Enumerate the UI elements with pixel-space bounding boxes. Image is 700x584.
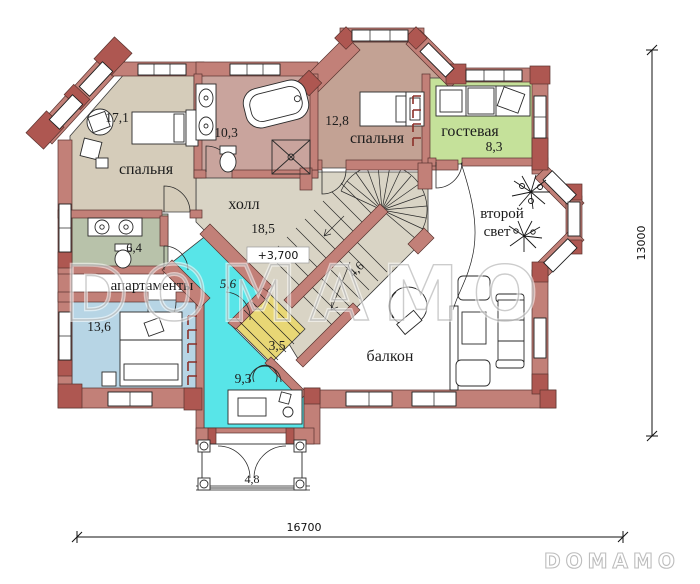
window-icon (466, 70, 522, 81)
desk-icon (228, 390, 302, 424)
bed-icon (132, 110, 198, 146)
sink-icon (196, 84, 216, 140)
label-bedroom1-name: спальня (119, 161, 174, 178)
floor-plan-drawing: спальня 17,1 10,3 спальня 12,8 гостевая … (0, 0, 700, 584)
window-icon (568, 202, 580, 236)
armchair-icon (456, 360, 490, 386)
label-office-area: 9,3 (235, 371, 252, 386)
sofa-icon (436, 86, 530, 116)
label-hall-area: 18,5 (251, 221, 275, 236)
plant-icon (509, 221, 542, 252)
dimension-right: 13000 (635, 45, 658, 441)
window-icon (352, 30, 408, 41)
label-guest-name: гостевая (441, 123, 499, 140)
dimension-right-value: 13000 (635, 226, 648, 261)
table-icon (80, 138, 102, 160)
label-bedroom2-area: 12,8 (325, 113, 349, 128)
watermark-text: DOMAMO (65, 249, 551, 338)
label-hall-name: холл (228, 196, 259, 213)
sink-icon (88, 218, 142, 236)
window-icon (138, 64, 186, 75)
window-icon (230, 64, 280, 75)
dimension-bottom: 16700 (72, 521, 628, 543)
table-icon (102, 372, 116, 386)
bed-icon (360, 92, 424, 126)
label-porch-area: 4,8 (245, 472, 260, 486)
label-second-light-line2: свет (484, 224, 511, 240)
dimension-bottom-value: 16700 (287, 521, 322, 534)
domamo-logo: DOMAMO (544, 549, 680, 573)
toilet-icon (220, 146, 236, 172)
label-bathroom1-area: 10,3 (214, 125, 238, 140)
label-second-light-line1: второй (480, 206, 524, 222)
table-icon (96, 158, 108, 168)
label-balcony-name: балкон (367, 348, 414, 365)
label-bedroom2-name: спальня (350, 130, 405, 147)
floor-plan-canvas: спальня 17,1 10,3 спальня 12,8 гостевая … (0, 0, 700, 584)
label-closet-area: 3,5 (269, 338, 286, 353)
label-guest-area: 8,3 (486, 139, 503, 154)
label-bedroom1-area: 17,1 (105, 110, 129, 125)
